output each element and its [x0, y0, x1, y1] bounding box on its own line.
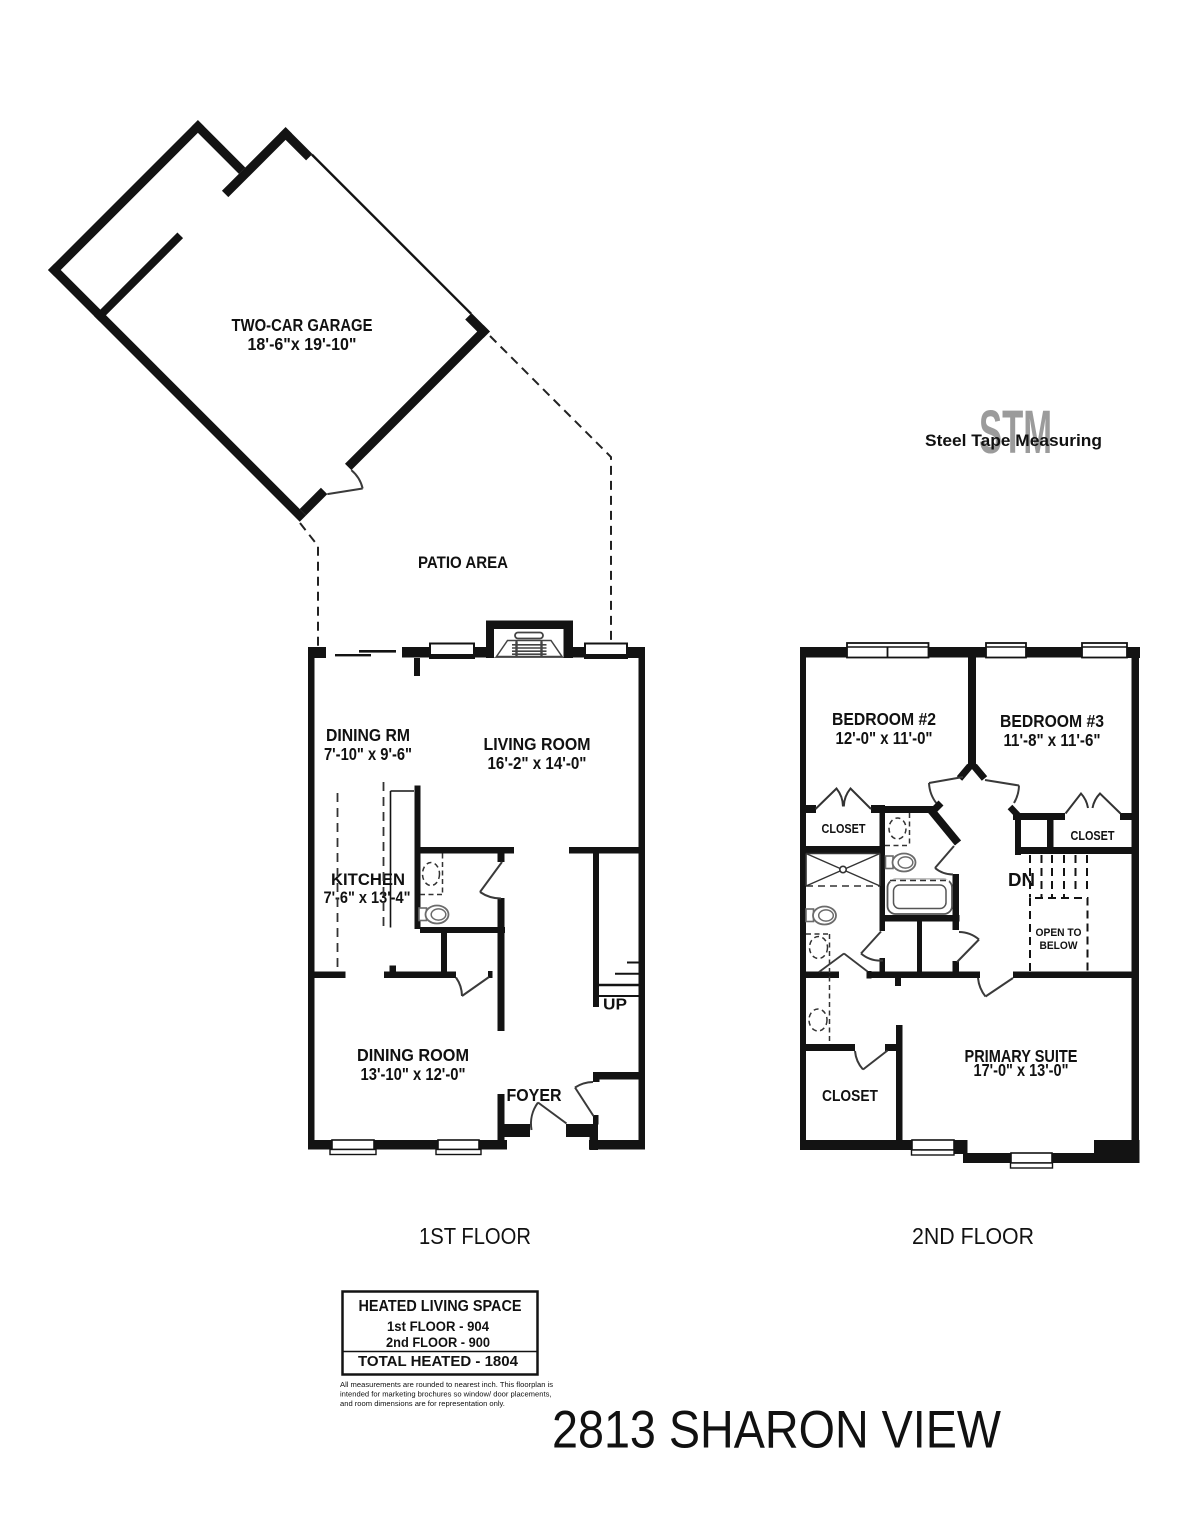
svg-text:DN: DN	[1008, 870, 1035, 890]
svg-text:2ND FLOOR: 2ND FLOOR	[912, 1223, 1034, 1249]
svg-text:BEDROOM #2: BEDROOM #2	[832, 709, 936, 729]
svg-text:2nd FLOOR - 900: 2nd FLOOR - 900	[386, 1335, 490, 1350]
svg-text:2813 SHARON VIEW: 2813 SHARON VIEW	[552, 1401, 1001, 1460]
svg-text:16'-2" x 14'-0": 16'-2" x 14'-0"	[488, 753, 587, 773]
svg-text:BEDROOM #3: BEDROOM #3	[1000, 711, 1104, 731]
svg-text:intended for marketing brochur: intended for marketing brochures so wind…	[340, 1390, 551, 1399]
svg-text:BELOW: BELOW	[1040, 940, 1079, 952]
svg-text:12'-0" x 11'-0": 12'-0" x 11'-0"	[836, 728, 933, 748]
svg-text:All measurements are rounded t: All measurements are rounded to nearest …	[340, 1380, 553, 1389]
svg-text:and room dimensions are for re: and room dimensions are for representati…	[340, 1399, 505, 1408]
svg-text:11'-8" x 11'-6": 11'-8" x 11'-6"	[1004, 730, 1101, 750]
svg-text:1st FLOOR - 904: 1st FLOOR - 904	[387, 1319, 489, 1334]
svg-text:UP: UP	[603, 997, 627, 1014]
svg-text:KITCHEN: KITCHEN	[331, 871, 405, 889]
svg-text:FOYER: FOYER	[507, 1085, 562, 1105]
svg-text:1ST FLOOR: 1ST FLOOR	[419, 1223, 531, 1249]
svg-text:CLOSET: CLOSET	[822, 1088, 878, 1105]
svg-text:7'-10" x 9'-6": 7'-10" x 9'-6"	[324, 744, 412, 764]
svg-text:13'-10" x 12'-0": 13'-10" x 12'-0"	[361, 1064, 466, 1084]
svg-text:Steel Tape Measuring: Steel Tape Measuring	[925, 431, 1102, 450]
svg-text:18'-6"x 19'-10": 18'-6"x 19'-10"	[248, 334, 357, 354]
svg-text:CLOSET: CLOSET	[822, 822, 866, 836]
svg-text:CLOSET: CLOSET	[1071, 829, 1115, 843]
svg-text:TWO-CAR GARAGE: TWO-CAR GARAGE	[232, 315, 373, 335]
svg-text:DINING ROOM: DINING ROOM	[357, 1045, 469, 1065]
svg-text:LIVING ROOM: LIVING ROOM	[484, 734, 591, 754]
svg-text:PATIO AREA: PATIO AREA	[418, 554, 508, 572]
svg-text:HEATED LIVING SPACE: HEATED LIVING SPACE	[359, 1298, 522, 1315]
svg-text:17'-0" x 13'-0": 17'-0" x 13'-0"	[974, 1060, 1069, 1080]
svg-text:DINING RM: DINING RM	[326, 725, 410, 745]
svg-text:OPEN TO: OPEN TO	[1036, 927, 1082, 939]
svg-text:7'-6" x 13'-4": 7'-6" x 13'-4"	[324, 889, 411, 907]
svg-text:TOTAL HEATED - 1804: TOTAL HEATED - 1804	[358, 1354, 518, 1370]
